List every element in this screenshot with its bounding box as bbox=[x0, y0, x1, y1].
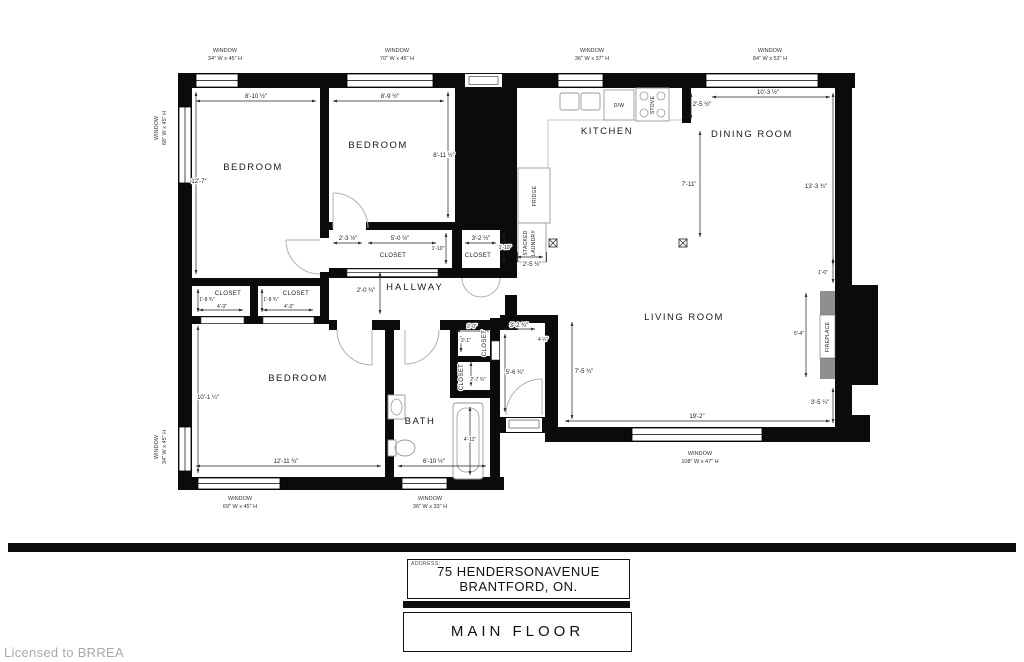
dim-dining-right: 13'-3 ¾" bbox=[805, 184, 827, 190]
address-line-2: BRANTFORD, ON. bbox=[408, 579, 629, 594]
closet-b-door bbox=[263, 317, 314, 324]
dishwasher-label: D/W bbox=[614, 103, 625, 109]
address-label: ADDRESS: bbox=[411, 561, 441, 567]
fridge-label: FRIDGE bbox=[532, 185, 538, 206]
window-bottom-2-title: WINDOW bbox=[418, 496, 443, 502]
dim-bed3-width: 12'-11 ¾" bbox=[274, 459, 299, 465]
dim-closet-col-width: 2'-0" bbox=[467, 324, 477, 330]
window-top-4 bbox=[706, 74, 818, 87]
fireplace-label: FIREPLACE bbox=[825, 321, 831, 352]
toilet bbox=[388, 440, 415, 456]
door-closet-right-double bbox=[462, 278, 500, 297]
room-label-hallway: HALLWAY bbox=[386, 282, 444, 293]
kitchen-sink bbox=[560, 93, 600, 110]
window-bottom-1-title: WINDOW bbox=[228, 496, 253, 502]
dim-living-corner: 3'-5 ¼" bbox=[811, 400, 830, 406]
fireplace: FIREPLACE bbox=[820, 291, 835, 379]
window-left-2 bbox=[179, 427, 191, 471]
dim-closet-right-depth: 1'-10" bbox=[499, 245, 512, 251]
closet-a-door bbox=[201, 317, 244, 324]
dishwasher: D/W bbox=[604, 90, 634, 120]
window-bottom-2-size: 36" W x 33" H bbox=[413, 504, 447, 510]
door-bedroom-2 bbox=[333, 193, 368, 228]
floor-title-box: MAIN FLOOR bbox=[403, 612, 632, 652]
dim-kitchen-stub: 2'-5 ½" bbox=[693, 101, 712, 108]
dim-vestibule-height: 5'-6 ¾" bbox=[506, 370, 525, 376]
address-box: ADDRESS: 75 HENDERSONAVENUE BRANTFORD, O… bbox=[407, 559, 630, 599]
dim-closet-mid-width: 5'-0 ½" bbox=[391, 235, 410, 242]
window-top-3-size: 36" W x 37" H bbox=[575, 56, 609, 62]
closet-column-door bbox=[492, 341, 500, 360]
room-label-dining: DINING ROOM bbox=[711, 129, 793, 140]
window-top-1-title: WINDOW bbox=[213, 48, 238, 54]
closet-mid-bifold-door bbox=[347, 269, 438, 277]
window-bottom-2 bbox=[402, 478, 447, 489]
dim-closet-col-depth: 2'-7 ¾" bbox=[470, 377, 486, 383]
dim-closet-a-width: 4'-3" bbox=[217, 304, 227, 310]
stove: STOVE bbox=[636, 88, 669, 121]
door-bedroom-3 bbox=[337, 330, 372, 365]
dim-closet-b-width: 4'-3" bbox=[284, 304, 294, 310]
window-bottom-3-title: WINDOW bbox=[688, 451, 713, 457]
window-top-4-title: WINDOW bbox=[758, 48, 783, 54]
dim-bed2-door: 2'-3 ½" bbox=[339, 235, 358, 242]
stove-label: STOVE bbox=[650, 95, 656, 114]
dim-bed2-height: 8'-11 ½" bbox=[433, 152, 455, 159]
dim-bed1-width: 8'-10 ½" bbox=[245, 93, 267, 100]
column-symbol-1 bbox=[549, 239, 557, 247]
closet-col-upper-label: CLOSET bbox=[482, 330, 488, 356]
window-top-1 bbox=[196, 74, 238, 87]
dim-bath-width: 6'-10 ½" bbox=[423, 458, 445, 465]
fridge: FRIDGE bbox=[518, 168, 550, 223]
dim-bathtub: 4'-11" bbox=[464, 437, 477, 443]
door-bath bbox=[405, 330, 439, 364]
dim-vestibule-width: 3'-2 ¾" bbox=[510, 323, 529, 329]
dim-closet-col-height: 2'-1" bbox=[461, 338, 471, 344]
dim-fireplace-height: 5'-4" bbox=[794, 331, 804, 337]
dim-closet-mid-depth: 1'-10" bbox=[432, 246, 445, 252]
window-left-2-title: WINDOW bbox=[154, 434, 160, 459]
window-top-3 bbox=[558, 74, 603, 87]
room-label-living: LIVING ROOM bbox=[644, 312, 724, 323]
dim-closet-b-depth: 1'-8 ¾" bbox=[263, 297, 279, 303]
window-bottom-3-size: 108" W x 47" H bbox=[681, 459, 718, 465]
dim-kitchen-pass: 2'-5 ¾" bbox=[523, 262, 542, 268]
room-label-bedroom-1: BEDROOM bbox=[223, 162, 283, 173]
address-line-1: 75 HENDERSONAVENUE bbox=[408, 564, 629, 579]
window-top-3-title: WINDOW bbox=[580, 48, 605, 54]
dim-living-width: 19'-2" bbox=[689, 414, 704, 420]
floor-plan-page: D/W STOVE FRIDGE STACKED LAUNDRY FIREPLA… bbox=[0, 0, 1024, 662]
window-top-2-title: WINDOW bbox=[385, 48, 410, 54]
dim-hallway-width: 2'-0 ¾" bbox=[357, 288, 376, 294]
room-label-kitchen: KITCHEN bbox=[581, 126, 633, 137]
dim-closet-right-width: 3'-2 ½" bbox=[472, 235, 491, 242]
room-label-bath: BATH bbox=[405, 416, 436, 427]
window-top-1-size: 34" W x 45" H bbox=[208, 56, 242, 62]
window-left-1-size: 68" W x 45" H bbox=[162, 111, 168, 145]
dim-bed2-width: 8'-9 ½" bbox=[381, 93, 400, 100]
closet-mid-label: CLOSET bbox=[380, 253, 406, 259]
column-symbol-2 bbox=[679, 239, 687, 247]
room-label-bedroom-3: BEDROOM bbox=[268, 373, 328, 384]
closet-b-label: CLOSET bbox=[283, 291, 309, 297]
window-left-2-size: 34" W x 45" H bbox=[162, 430, 168, 464]
closet-col-lower-label: CLOSET bbox=[459, 364, 465, 390]
front-door bbox=[506, 379, 542, 432]
laundry-label-2: LAUNDRY bbox=[531, 230, 537, 256]
closet-right-label: CLOSET bbox=[465, 253, 491, 259]
divider-line-middle bbox=[403, 601, 630, 608]
window-left-1 bbox=[179, 107, 191, 183]
window-top-2-size: 70" W x 45" H bbox=[380, 56, 414, 62]
dim-dining-width: 10'-3 ½" bbox=[757, 89, 779, 96]
room-label-bedroom-2: BEDROOM bbox=[348, 140, 408, 151]
window-top-2 bbox=[347, 74, 433, 87]
door-bedroom-1 bbox=[286, 240, 320, 274]
window-bottom-1 bbox=[198, 478, 280, 489]
dim-living-height: 7'-5 ¾" bbox=[575, 369, 594, 375]
bath-vanity bbox=[388, 395, 405, 419]
stacked-laundry: STACKED LAUNDRY bbox=[518, 223, 546, 262]
window-top-4-size: 84" W x 53" H bbox=[753, 56, 787, 62]
dim-closet-a-depth: 1'-8 ¾" bbox=[199, 297, 215, 303]
back-door-opening bbox=[465, 74, 502, 87]
divider-line-top bbox=[8, 543, 1016, 552]
dim-fireplace-offset: 1'-0" bbox=[818, 270, 828, 276]
window-bottom-3 bbox=[632, 428, 762, 441]
license-text: Licensed to BRREA bbox=[4, 645, 124, 660]
closet-a-label: CLOSET bbox=[215, 291, 241, 297]
dim-vestibule-jog: 4 ¼" bbox=[538, 337, 548, 343]
dim-dining-height: 7'-11" bbox=[682, 182, 697, 188]
window-bottom-1-size: 69" W x 45" H bbox=[223, 504, 257, 510]
window-left-1-title: WINDOW bbox=[154, 115, 160, 140]
dim-bed1-height: 12'-7" bbox=[191, 179, 206, 185]
dim-bed3-height: 10'-1 ¼" bbox=[197, 395, 219, 401]
laundry-label-1: STACKED bbox=[523, 230, 529, 255]
